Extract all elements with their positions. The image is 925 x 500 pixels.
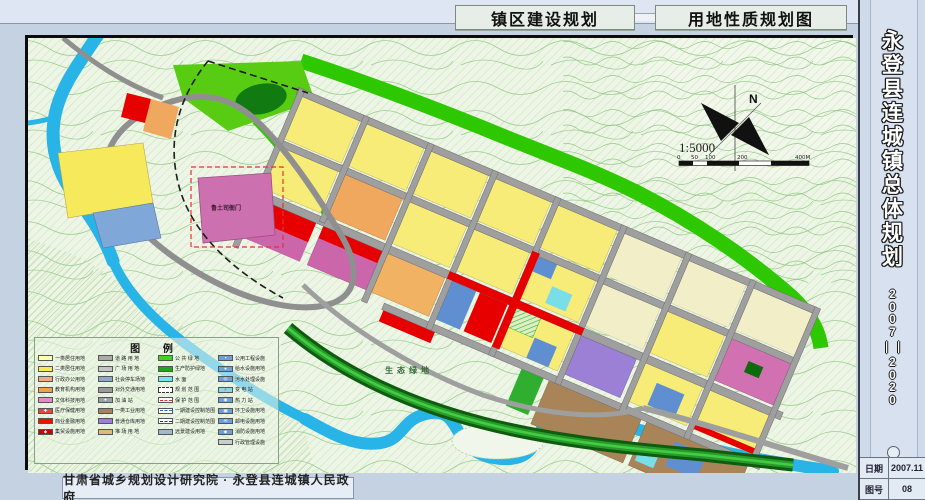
legend-swatch (158, 355, 173, 361)
scale-tick: 200 (737, 155, 748, 161)
vertical-char: 2 (860, 288, 925, 301)
legend-swatch (218, 439, 233, 445)
legend-label: 教育机构用地 (55, 386, 85, 393)
legend-item: ●加 油 站 (98, 395, 155, 406)
legend-label: 公用工程设施 (235, 355, 265, 362)
legend-swatch (158, 429, 173, 435)
legend-swatch: ● (218, 366, 233, 372)
vertical-char: 7 (860, 326, 925, 339)
scale-tick: 50 (691, 155, 698, 161)
legend-item: 商业金融用地 (38, 416, 95, 427)
legend-item: 堆 场 用 地 (98, 427, 155, 438)
vertical-char: 0 (860, 313, 925, 326)
vertical-char: 0 (860, 394, 925, 407)
legend-swatch: ▣ (218, 408, 233, 414)
scale-ratio: 1:5000 (679, 140, 715, 155)
legend-swatch (158, 418, 173, 424)
compass-n-label: N (749, 92, 758, 106)
vertical-char: 连 (860, 102, 925, 126)
legend-item: 普通仓库用地 (98, 416, 155, 427)
legend-swatch (38, 355, 53, 361)
vertical-char: 总 (860, 174, 925, 198)
vertical-char: 登 (860, 54, 925, 78)
legend-item: ●给水设施用地 (218, 364, 275, 375)
legend-title: 图 例 (38, 340, 275, 353)
legend-item: 对外交通用地 (98, 385, 155, 396)
vertical-char: 划 (860, 246, 925, 270)
legend-label: 一类工业用地 (115, 407, 145, 414)
legend-label: 变 电 站 (235, 386, 253, 393)
vertical-char: 体 (860, 198, 925, 222)
legend-columns: 一类居住用地二类居住用地行政办公用地教育机构用地文体科技用地✚医疗保健用地商业金… (38, 353, 275, 448)
legend-label: 二类居住用地 (55, 365, 85, 372)
legend-swatch (38, 376, 53, 382)
legend-label: 二期建设控制范围 (175, 418, 215, 425)
legend-label: 给水设施用地 (235, 365, 265, 372)
legend-item: 二期建设控制范围 (158, 416, 215, 427)
scale-tick: 0 (677, 155, 681, 161)
drawing-title-vertical: 永登县连城镇总体规划 (860, 30, 925, 270)
legend-swatch (98, 408, 113, 414)
legend-label: 热 力 站 (235, 397, 253, 404)
legend-swatch (38, 387, 53, 393)
legend-swatch (98, 366, 113, 372)
legend-column: ▪公用工程设施●给水设施用地◎污水处理设施⚡变 电 站◉热 力 站▣环卫设施用地… (218, 353, 275, 448)
legend-item: ▣环卫设施用地 (218, 406, 275, 417)
title-block-table: 日期 2007.11 图号 08 (860, 457, 925, 500)
legend-item: ▪公用工程设施 (218, 353, 275, 364)
legend-swatch (98, 429, 113, 435)
legend-column: 一类居住用地二类居住用地行政办公用地教育机构用地文体科技用地✚医疗保健用地商业金… (38, 353, 95, 448)
legend-label: 一类居住用地 (55, 355, 85, 362)
legend-item: 规 划 范 围 (158, 385, 215, 396)
legend-label: 一期建设控制范围 (175, 407, 215, 414)
legend-label: 广 场 用 地 (115, 365, 139, 372)
legend-item: ◎污水处理设施 (218, 374, 275, 385)
legend-label: 加 油 站 (115, 397, 133, 404)
vertical-char: 永 (860, 30, 925, 54)
legend-label: 规 划 范 围 (175, 386, 199, 393)
legend-item: 行政管理设施 (218, 437, 275, 448)
legend-item: ◉热 力 站 (218, 395, 275, 406)
vertical-char: 县 (860, 78, 925, 102)
legend-swatch (158, 397, 173, 403)
legend-swatch (158, 366, 173, 372)
title-connector (633, 13, 655, 21)
legend-swatch (38, 366, 53, 372)
legend-column: 道 路 用 地广 场 用 地社会停车场地对外交通用地●加 油 站一类工业用地普通… (98, 353, 155, 448)
legend-label: 远景建设用地 (175, 428, 205, 435)
legend-swatch (158, 376, 173, 382)
legend-item: ✚医疗保健用地 (38, 406, 95, 417)
legend-item: 文体科技用地 (38, 395, 95, 406)
legend-label: 堆 场 用 地 (115, 428, 139, 435)
table-row: 日期 2007.11 (860, 458, 925, 479)
legend-label: 公 共 绿 地 (175, 355, 199, 362)
legend-item: ✉邮电设施用地 (218, 416, 275, 427)
legend-item: 保 护 范 围 (158, 395, 215, 406)
legend-label: 污水处理设施 (235, 376, 265, 383)
drawing-years-vertical: 2007——2020 (860, 288, 925, 406)
legend-label: 环卫设施用地 (235, 407, 265, 414)
legend-label: 商业金融用地 (55, 418, 85, 425)
legend-label: 集贸设施用地 (55, 428, 85, 435)
legend-label: 对外交通用地 (115, 386, 145, 393)
legend-swatch (158, 408, 173, 414)
legend-swatch (38, 418, 53, 424)
legend-swatch (98, 418, 113, 424)
legend-item: 一类居住用地 (38, 353, 95, 364)
legend-swatch: ● (98, 397, 113, 403)
vertical-char: 2 (860, 356, 925, 369)
legend-label: 医疗保健用地 (55, 407, 85, 414)
scale-tick: 400M (795, 155, 810, 161)
legend-swatch: ◎ (218, 376, 233, 382)
legend-swatch (38, 397, 53, 403)
legend-label: 行政办公用地 (55, 376, 85, 383)
legend-label: 水 面 (175, 376, 186, 383)
legend-swatch (98, 387, 113, 393)
map-canvas: 鲁土司衙门 生态绿地 N 1:500 (25, 35, 853, 470)
vertical-char: 镇 (860, 150, 925, 174)
legend-item: ⚡变 电 站 (218, 385, 275, 396)
legend-swatch: ✉ (218, 418, 233, 424)
legend-item: 公 共 绿 地 (158, 353, 215, 364)
legend-item: 二类居住用地 (38, 364, 95, 375)
legend-label: 消防设施用地 (235, 428, 265, 435)
legend-label: 文体科技用地 (55, 397, 85, 404)
legend-item: 道 路 用 地 (98, 353, 155, 364)
legend-swatch: ◆ (218, 429, 233, 435)
legend-swatch: ⚡ (218, 387, 233, 393)
legend-item: 行政办公用地 (38, 374, 95, 385)
legend-label: 保 护 范 围 (175, 397, 199, 404)
legend-swatch (158, 387, 173, 393)
sheet-number-label: 图号 (860, 479, 889, 499)
title-block-sidebar: 永登县连城镇总体规划 2007——2020 日期 2007.11 图号 08 (858, 0, 925, 500)
legend-item: 教育机构用地 (38, 385, 95, 396)
legend: 图 例 一类居住用地二类居住用地行政办公用地教育机构用地文体科技用地✚医疗保健用… (34, 337, 279, 464)
legend-item: 广 场 用 地 (98, 364, 155, 375)
landmark-label: 鲁土司衙门 (211, 204, 241, 212)
vertical-char: 规 (860, 222, 925, 246)
legend-swatch (98, 376, 113, 382)
vertical-char: 2 (860, 381, 925, 394)
title-map-name: 用地性质规划图 (655, 5, 847, 30)
legend-label: 行政管理设施 (235, 439, 265, 446)
legend-item: 一类工业用地 (98, 406, 155, 417)
legend-swatch: ◉ (218, 397, 233, 403)
legend-item: 一期建设控制范围 (158, 406, 215, 417)
legend-column: 公 共 绿 地生产防护绿地水 面规 划 范 围保 护 范 围一期建设控制范围二期… (158, 353, 215, 448)
table-row: 图号 08 (860, 479, 925, 500)
legend-item: ◆集贸设施用地 (38, 427, 95, 438)
title-plan-type: 镇区建设规划 (455, 5, 635, 30)
eco-green-label: 生态绿地 (385, 365, 433, 375)
legend-item: 水 面 (158, 374, 215, 385)
plan-sheet-page: 镇区建设规划 用地性质规划图 (0, 0, 925, 500)
legend-label: 社会停车场地 (115, 376, 145, 383)
date-value: 2007.11 (889, 458, 925, 478)
legend-label: 道 路 用 地 (115, 355, 139, 362)
legend-swatch (98, 355, 113, 361)
legend-item: 远景建设用地 (158, 427, 215, 438)
scale-tick: 100 (705, 155, 716, 161)
date-label: 日期 (860, 458, 889, 478)
sheet-number-value: 08 (889, 479, 925, 499)
legend-label: 生产防护绿地 (175, 365, 205, 372)
vertical-char: 城 (860, 126, 925, 150)
vertical-char: — (880, 341, 893, 353)
legend-swatch: ▪ (218, 355, 233, 361)
legend-item: ◆消防设施用地 (218, 427, 275, 438)
vertical-char: — (892, 341, 905, 353)
legend-swatch: ✚ (38, 408, 53, 414)
legend-label: 普通仓库用地 (115, 418, 145, 425)
credit-bar: 甘肃省城乡规划设计研究院 · 永登县连城镇人民政府 (62, 477, 354, 499)
legend-label: 邮电设施用地 (235, 418, 265, 425)
legend-item: 生产防护绿地 (158, 364, 215, 375)
legend-swatch: ◆ (38, 429, 53, 435)
legend-item: 社会停车场地 (98, 374, 155, 385)
